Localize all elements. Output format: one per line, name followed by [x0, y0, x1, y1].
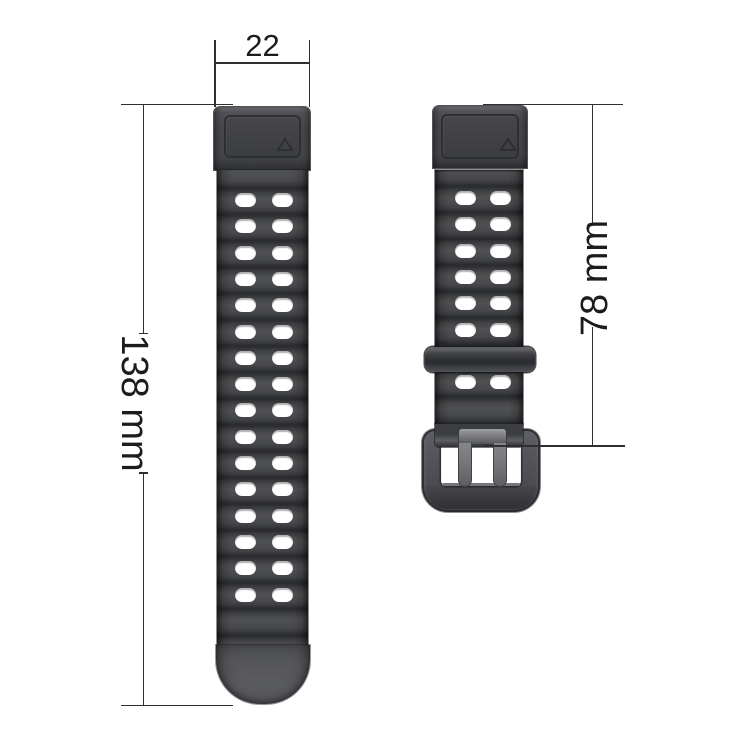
strap-hole — [272, 246, 293, 260]
strap-hole — [235, 588, 256, 602]
strap-hole — [490, 270, 511, 284]
right-dim-bottom-line — [484, 445, 625, 447]
strap-hole — [235, 509, 256, 523]
strap-hole — [272, 482, 293, 496]
buckle-prong-left — [458, 443, 472, 487]
strap-hole — [272, 509, 293, 523]
strap-hole — [272, 377, 293, 391]
strap-hole — [272, 193, 293, 207]
strap-hole — [455, 375, 476, 389]
strap-hole — [235, 482, 256, 496]
strap-hole — [235, 377, 256, 391]
strap-hole — [272, 456, 293, 470]
left-strap-tail — [216, 645, 310, 704]
strap-hole — [272, 298, 293, 312]
strap-hole — [455, 217, 476, 231]
strap-hole — [272, 430, 293, 444]
strap-hole — [272, 535, 293, 549]
buckle-opening — [441, 441, 521, 486]
strap-hole — [272, 351, 293, 365]
left-lug-plate — [224, 115, 301, 158]
strap-hole — [490, 244, 511, 258]
strap-hole — [235, 193, 256, 207]
strap-hole — [455, 270, 476, 284]
left-strap-lug — [214, 107, 310, 170]
strap-hole — [272, 403, 293, 417]
strap-hole — [272, 272, 293, 286]
right-length-label: 78 mm — [574, 203, 616, 353]
strap-hole — [235, 456, 256, 470]
buckle-prong-right — [493, 443, 507, 487]
strap-hole — [235, 246, 256, 260]
strap-keeper-loop — [425, 347, 535, 372]
strap-hole — [272, 219, 293, 233]
strap-hole — [455, 244, 476, 258]
strap-hole — [490, 296, 511, 310]
strap-hole — [455, 296, 476, 310]
strap-hole — [235, 403, 256, 417]
left-strap-waves — [217, 170, 308, 645]
strap-hole — [272, 325, 293, 339]
strap-hole — [235, 325, 256, 339]
left-dim-line-upper — [143, 104, 145, 333]
right-strap-lug — [433, 106, 527, 168]
left-dim-bottom-tick — [121, 705, 233, 707]
left-dim-top-tick — [121, 104, 233, 106]
left-dim-line-lower — [143, 473, 145, 706]
right-strap-waves — [435, 170, 523, 424]
right-dim-top-line — [483, 104, 623, 106]
strap-hole — [235, 561, 256, 575]
strap-hole — [455, 191, 476, 205]
strap-hole — [235, 272, 256, 286]
strap-hole — [235, 535, 256, 549]
strap-hole — [235, 298, 256, 312]
strap-hole — [490, 191, 511, 205]
strap-hole — [490, 323, 511, 337]
strap-hole — [490, 217, 511, 231]
strap-hole — [235, 351, 256, 365]
right-lug-plate — [441, 114, 519, 159]
strap-hole — [490, 375, 511, 389]
buckle-bottom-bar — [425, 486, 537, 509]
strap-hole — [272, 561, 293, 575]
buckle-prong-bridge — [458, 428, 507, 445]
strap-hole — [235, 219, 256, 233]
triangle-mark-icon — [499, 137, 517, 152]
strap-hole — [272, 588, 293, 602]
watch-strap-dimension-diagram: 22 — [0, 0, 750, 750]
left-length-label: 138 mm — [113, 318, 155, 488]
strap-hole — [235, 430, 256, 444]
strap-hole — [455, 323, 476, 337]
triangle-mark-icon — [276, 137, 294, 152]
width-dim-label: 22 — [215, 30, 310, 61]
